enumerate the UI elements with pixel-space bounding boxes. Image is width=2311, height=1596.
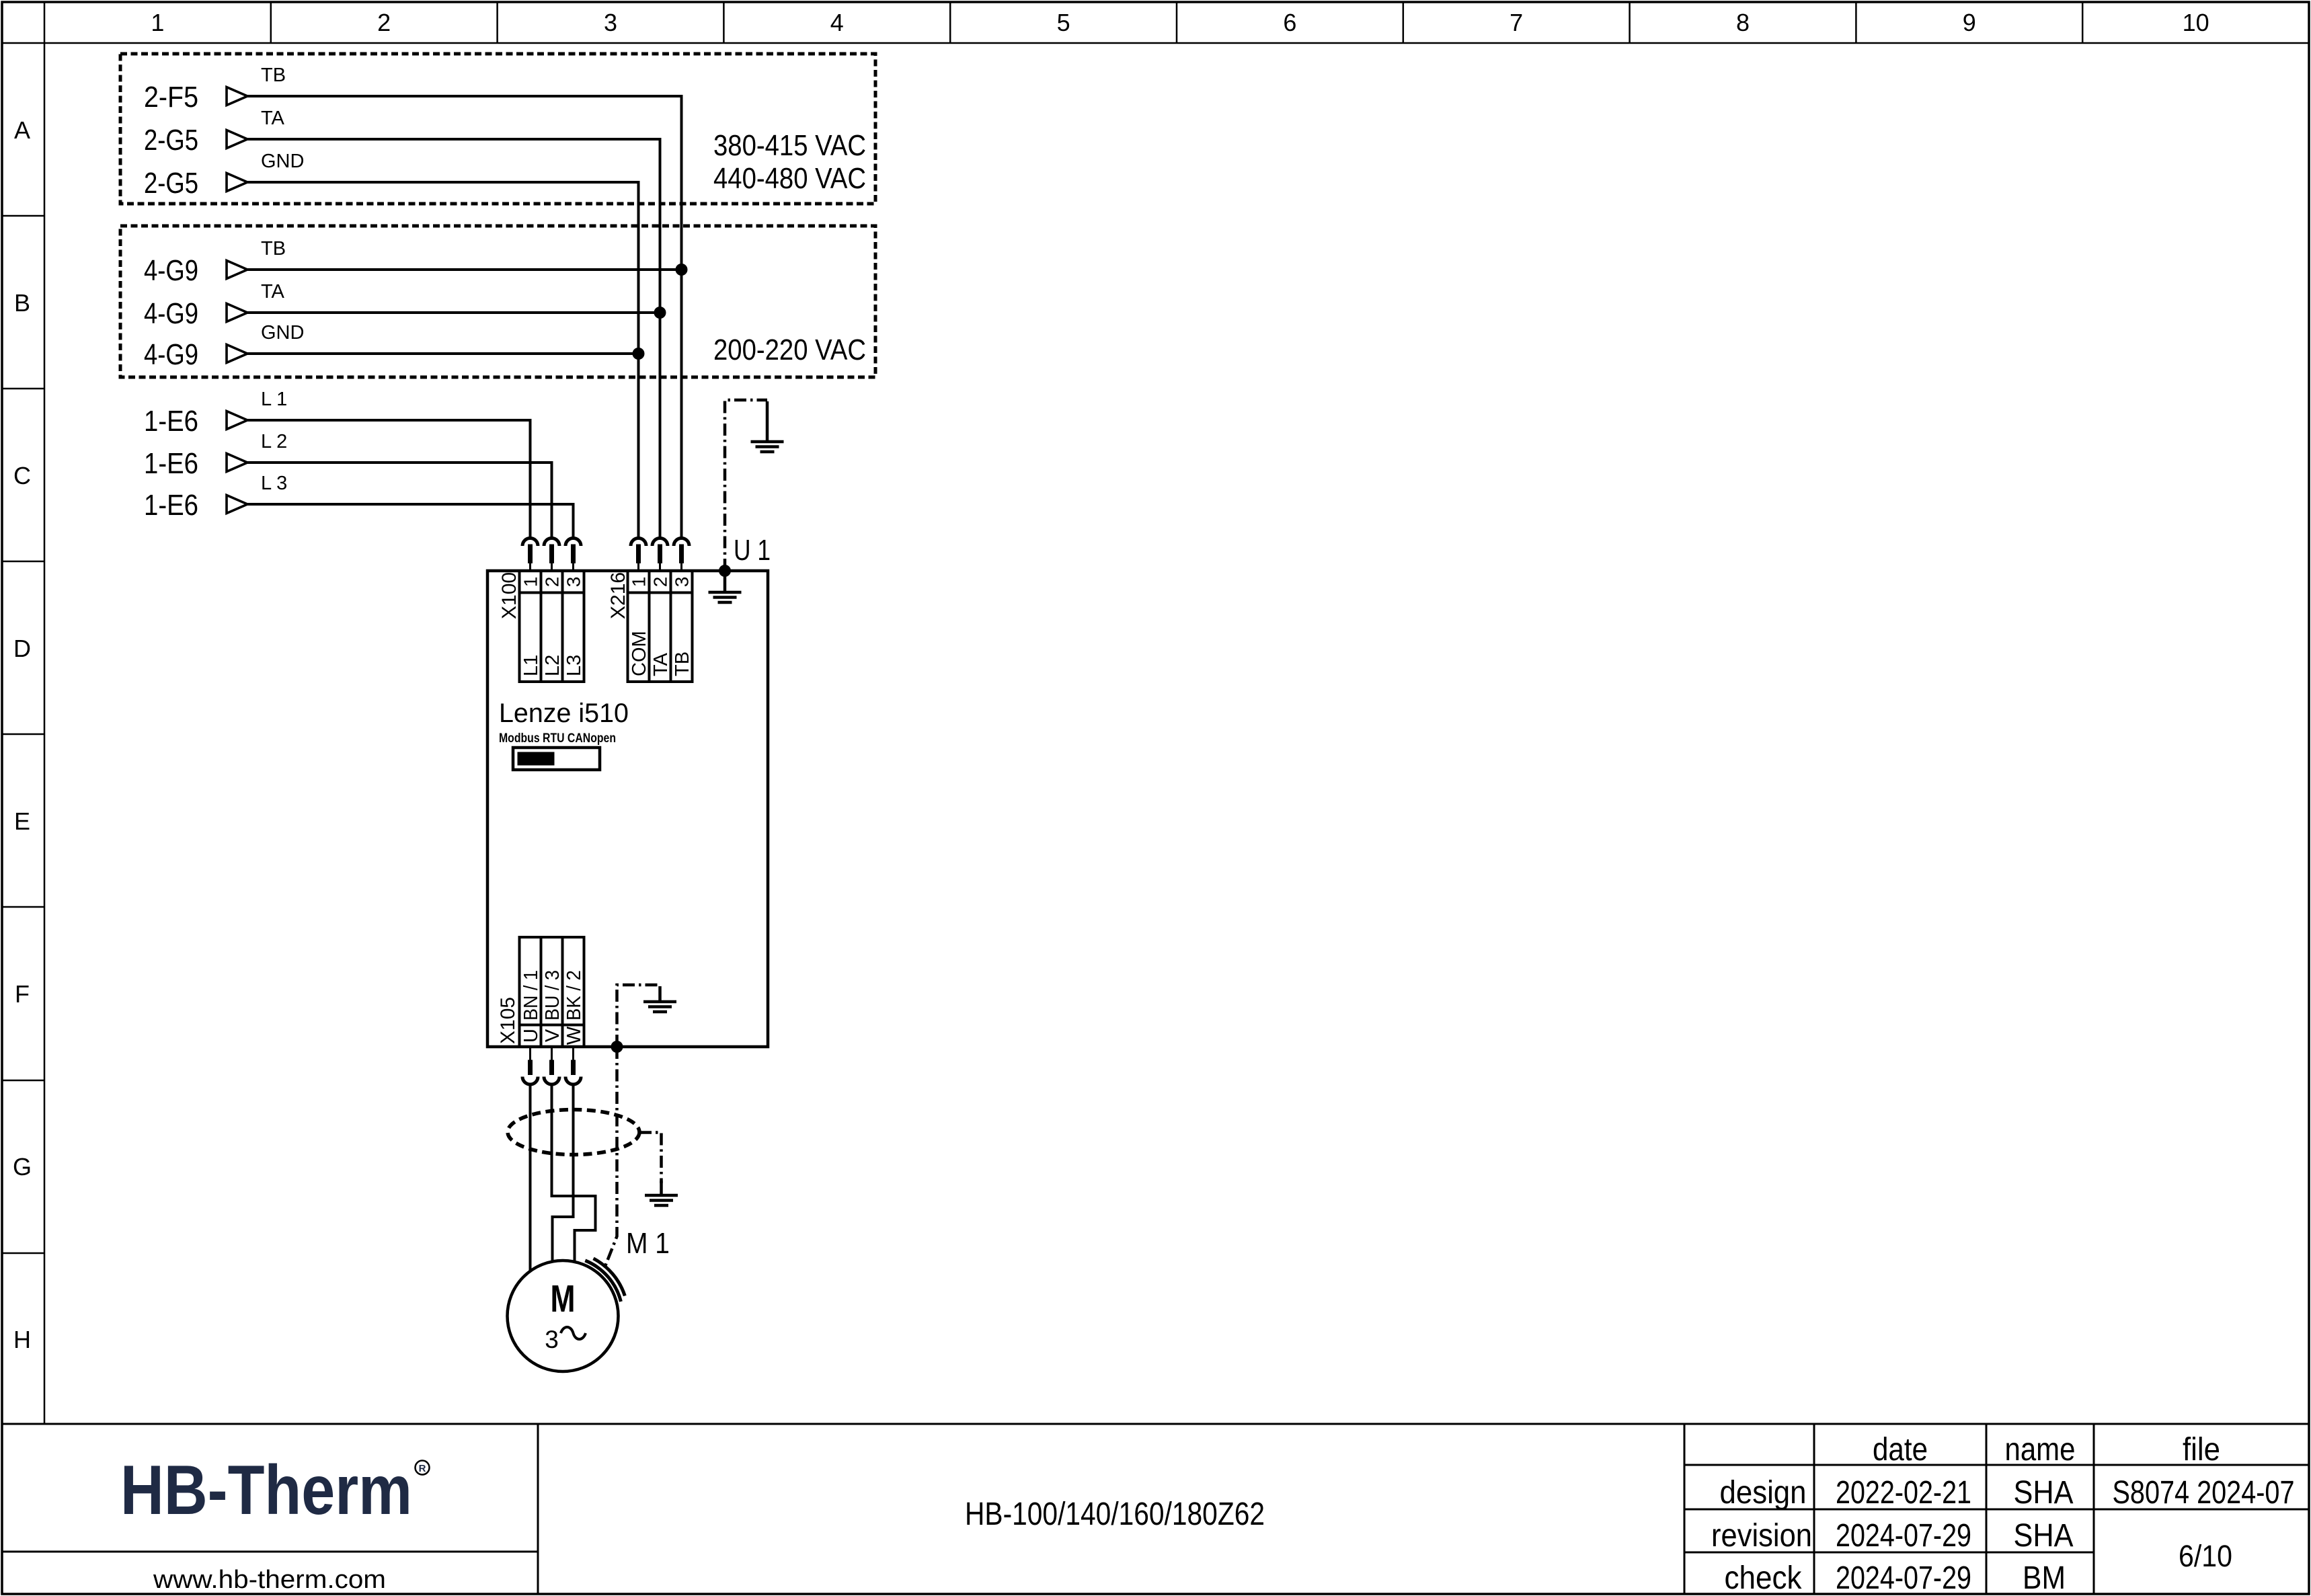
svg-text:Modbus RTU CANopen: Modbus RTU CANopen (499, 731, 616, 746)
svg-text:2-G5: 2-G5 (144, 124, 198, 157)
svg-text:date: date (1873, 1432, 1928, 1468)
svg-text:BK / 2: BK / 2 (563, 970, 585, 1021)
svg-text:TB: TB (261, 65, 286, 86)
svg-text:U 1: U 1 (734, 534, 771, 567)
svg-text:2024-07-29: 2024-07-29 (1836, 1518, 1971, 1554)
svg-text:1: 1 (629, 577, 650, 588)
svg-text:2: 2 (377, 9, 391, 36)
svg-text:TA: TA (261, 281, 285, 303)
svg-text:7: 7 (1510, 9, 1523, 36)
svg-text:M 1: M 1 (626, 1227, 670, 1260)
svg-text:L 2: L 2 (261, 431, 287, 452)
svg-text:8: 8 (1736, 9, 1750, 36)
svg-text:X100: X100 (498, 572, 520, 619)
svg-text:D: D (13, 635, 31, 662)
svg-text:3: 3 (604, 9, 617, 36)
svg-text:H: H (13, 1326, 31, 1353)
svg-text:380-415 VAC: 380-415 VAC (713, 129, 866, 162)
svg-text:1-E6: 1-E6 (144, 405, 198, 438)
svg-text:U: U (520, 1029, 542, 1043)
svg-text:BN / 1: BN / 1 (520, 970, 542, 1021)
svg-text:1: 1 (520, 577, 541, 588)
svg-text:SHA: SHA (2014, 1518, 2074, 1554)
svg-text:L 1: L 1 (261, 389, 287, 410)
svg-text:V: V (542, 1029, 563, 1042)
svg-text:M: M (551, 1277, 576, 1320)
svg-text:check: check (1725, 1560, 1803, 1596)
svg-text:TA: TA (261, 108, 285, 129)
svg-text:name: name (2005, 1432, 2076, 1468)
svg-text:SHA: SHA (2014, 1475, 2074, 1511)
svg-text:BU / 3: BU / 3 (542, 970, 563, 1021)
svg-text:www.hb-therm.com: www.hb-therm.com (153, 1566, 386, 1594)
svg-text:4: 4 (830, 9, 844, 36)
svg-text:L3: L3 (563, 655, 585, 676)
svg-text:440-480 VAC: 440-480 VAC (713, 162, 866, 195)
svg-text:1-E6: 1-E6 (144, 447, 198, 480)
svg-text:TB: TB (261, 238, 286, 260)
svg-text:2022-02-21: 2022-02-21 (1836, 1475, 1971, 1511)
svg-text:3: 3 (545, 1326, 559, 1353)
svg-text:revision: revision (1711, 1518, 1812, 1554)
svg-text:10: 10 (2183, 9, 2209, 36)
svg-text:file: file (2183, 1432, 2220, 1468)
svg-text:design: design (1720, 1475, 1807, 1511)
svg-text:L 3: L 3 (261, 473, 287, 494)
svg-text:E: E (14, 807, 30, 835)
svg-text:4-G9: 4-G9 (144, 297, 198, 330)
svg-text:9: 9 (1963, 9, 1976, 36)
svg-text:5: 5 (1057, 9, 1070, 36)
svg-text:L1: L1 (520, 655, 542, 676)
svg-text:4-G9: 4-G9 (144, 254, 198, 287)
svg-text:2-G5: 2-G5 (144, 167, 198, 200)
svg-text:2-F5: 2-F5 (144, 81, 198, 114)
svg-text:1-E6: 1-E6 (144, 489, 198, 522)
svg-text:GND: GND (261, 322, 304, 344)
svg-text:1: 1 (151, 9, 164, 36)
svg-text:L2: L2 (542, 655, 563, 676)
svg-text:W: W (563, 1026, 585, 1045)
svg-text:F: F (15, 980, 30, 1008)
svg-text:4-G9: 4-G9 (144, 338, 198, 371)
svg-text:6/10: 6/10 (2179, 1539, 2232, 1573)
svg-text:C: C (13, 462, 31, 489)
svg-text:TB: TB (672, 651, 693, 676)
svg-text:2: 2 (650, 577, 671, 588)
svg-text:HB-Therm: HB-Therm (120, 1451, 412, 1529)
svg-text:HB-100/140/160/180Z62: HB-100/140/160/180Z62 (965, 1497, 1265, 1532)
svg-text:A: A (14, 116, 30, 144)
svg-text:3: 3 (672, 577, 693, 588)
svg-text:X216: X216 (607, 572, 629, 619)
svg-text:3: 3 (563, 577, 584, 588)
svg-text:X105: X105 (497, 997, 519, 1044)
svg-text:S8074 2024-07: S8074 2024-07 (2113, 1475, 2295, 1511)
svg-text:200-220 VAC: 200-220 VAC (713, 333, 866, 366)
svg-text:TA: TA (650, 652, 672, 676)
svg-text:GND: GND (261, 151, 304, 172)
svg-text:6: 6 (1283, 9, 1296, 36)
svg-text:R: R (419, 1463, 426, 1474)
svg-text:BM: BM (2023, 1560, 2066, 1596)
svg-text:COM: COM (629, 631, 650, 676)
svg-text:2024-07-29: 2024-07-29 (1836, 1560, 1971, 1596)
svg-text:B: B (14, 289, 30, 317)
svg-text:Lenze i510: Lenze i510 (499, 699, 629, 728)
svg-text:G: G (13, 1153, 32, 1181)
svg-text:2: 2 (542, 577, 563, 588)
